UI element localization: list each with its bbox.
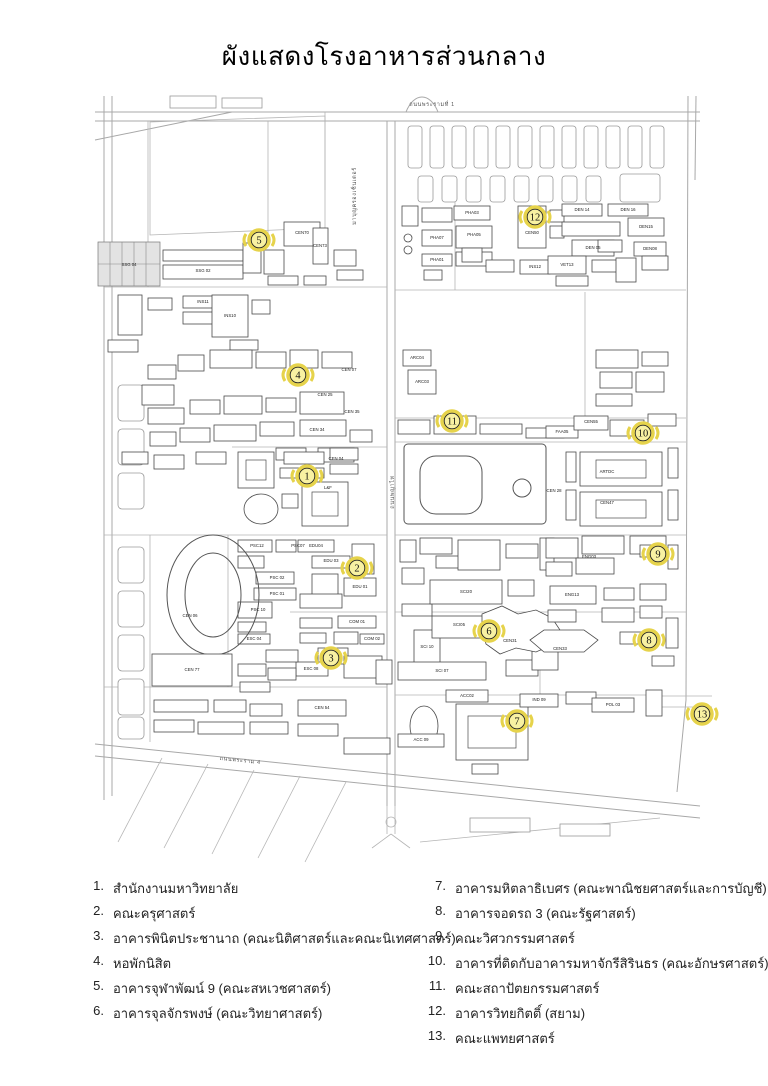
marker-number: 13	[697, 710, 708, 721]
building-label: DEN08	[643, 246, 657, 251]
legend-item-number: 11.	[420, 978, 446, 993]
building-label: INS10	[224, 313, 237, 318]
legend-item: 2.คณะครุศาสตร์	[78, 903, 413, 928]
street-label: ถนนพญาไท	[389, 475, 396, 508]
building-label: DEN 16	[620, 207, 636, 212]
legend-item: 6.อาคารจุลจักรพงษ์ (คณะวิทยาศาสตร์)	[78, 1003, 413, 1028]
utensil-tick-left-icon	[687, 708, 689, 720]
building-label: PHA01	[430, 257, 444, 262]
legend-item: 12.อาคารวิทยกิตติ์ (สยาม)	[420, 1003, 765, 1028]
building-label: VET13	[560, 262, 574, 267]
legend-item-text: คณะครุศาสตร์	[113, 903, 195, 924]
legend-item-number: 7.	[420, 878, 446, 893]
building-label: SCI20	[460, 589, 473, 594]
building-label: CEN 07	[341, 367, 357, 372]
building-label: PHA07	[430, 235, 444, 240]
building-label: ACC02	[460, 693, 474, 698]
building-label: CEN73	[313, 243, 327, 248]
building-label: ENG03	[582, 554, 597, 559]
legend-item-text: สำนักงานมหาวิทยาลัย	[113, 878, 238, 899]
building-label: CEN55	[584, 419, 598, 424]
utensil-tick-left-icon	[283, 369, 285, 381]
building-label: SCI 10	[420, 644, 434, 649]
marker-number: 4	[295, 371, 301, 382]
legend-item-text: อาคารจุฬาพัฒน์ 9 (คณะสหเวชศาสตร์)	[113, 978, 331, 999]
campus-buildings	[98, 204, 678, 774]
utensil-tick-right-icon	[272, 234, 274, 246]
legend-item-number: 1.	[78, 878, 104, 893]
legend-item: 4.หอพักนิสิต	[78, 953, 413, 978]
marker-number: 5	[256, 236, 261, 247]
building-label: CEN 77	[184, 667, 200, 672]
marker-number: 12	[530, 213, 541, 224]
building-label: PSC 02	[270, 575, 285, 580]
building-label: ACC 09	[413, 737, 429, 742]
building-label: PSC07	[291, 543, 305, 548]
legend-item: 10.อาคารที่ติดกับอาคารมหาจักรีสิรินธร (ค…	[420, 953, 765, 978]
marker-number: 11	[447, 417, 457, 428]
building-label: COM 01	[349, 619, 366, 624]
building-label: ARTDC	[600, 469, 615, 474]
building-label: ARC04	[410, 355, 424, 360]
building-label: CEN31	[503, 638, 517, 643]
marker-number: 2	[354, 564, 359, 575]
legend-item-number: 3.	[78, 928, 104, 943]
legend-item: 9.คณะวิศวกรรมศาสตร์	[420, 928, 765, 953]
marker-number: 7	[514, 717, 519, 728]
building-label: CEN 54	[314, 705, 330, 710]
legend-item: 5.อาคารจุฬาพัฒน์ 9 (คณะสหเวชศาสตร์)	[78, 978, 413, 1003]
legend-item: 1.สำนักงานมหาวิทยาลัย	[78, 878, 413, 903]
building-label: DEN 14	[574, 207, 590, 212]
legend-item-number: 13.	[420, 1028, 446, 1043]
legend-item-text: อาคารพินิตประชานาถ (คณะนิติศาสตร์และคณะน…	[113, 928, 456, 949]
street-label: ถนนพระรามที่ 1	[409, 100, 454, 108]
building-label: PHA03	[465, 210, 479, 215]
utensil-tick-right-icon	[530, 715, 532, 727]
building-label: DEN15	[639, 224, 653, 229]
utensil-tick-right-icon	[662, 634, 664, 646]
legend-item: 8.อาคารจอดรถ 3 (คณะรัฐศาสตร์)	[420, 903, 765, 928]
legend-item-number: 5.	[78, 978, 104, 993]
legend-item: 7.อาคารมหิตลาธิเบศร (คณะพาณิชยศาสตร์และก…	[420, 878, 765, 903]
legend-item-text: อาคารมหิตลาธิเบศร (คณะพาณิชยศาสตร์และการ…	[455, 878, 767, 899]
building-label: SCI 07	[435, 668, 449, 673]
building-label: PSC 01	[270, 591, 285, 596]
building-label: CEN 35	[344, 409, 360, 414]
building-label: FAA05	[556, 429, 570, 434]
legend-item-number: 10.	[420, 953, 446, 968]
building-label: INS11	[197, 299, 209, 304]
legend-item: 11.คณะสถาปัตยกรรมศาสตร์	[420, 978, 765, 1003]
building-label: CEN 04	[328, 456, 344, 461]
building-label: L&F	[324, 485, 332, 490]
marker-number: 3	[328, 654, 333, 665]
legend-item-number: 9.	[420, 928, 446, 943]
legend-right-column: 7.อาคารมหิตลาธิเบศร (คณะพาณิชยศาสตร์และก…	[420, 878, 765, 1053]
building-label: CEN 28	[546, 488, 562, 493]
building-label: IND 09	[532, 697, 546, 702]
building-label: CEN 06	[182, 613, 198, 618]
building-label: SSG 04	[121, 262, 137, 267]
building-label: CEN50	[525, 230, 539, 235]
building-label: CEN33	[553, 646, 567, 651]
building-label: ESC 04	[247, 636, 262, 641]
building-label: EDU 01	[352, 584, 368, 589]
legend-item: 13.คณะแพทยศาสตร์	[420, 1028, 765, 1053]
street-label: ถนนพระราม 4	[219, 756, 261, 766]
legend-left-column: 1.สำนักงานมหาวิทยาลัย2.คณะครุศาสตร์3.อาค…	[78, 878, 413, 1028]
building-label: POL 03	[606, 702, 621, 707]
utensil-tick-right-icon	[715, 708, 717, 720]
marker-number: 6	[486, 627, 491, 638]
utensil-tick-right-icon	[311, 369, 313, 381]
building-label: PHA05	[467, 232, 481, 237]
building-label: ARC03	[415, 379, 429, 384]
legend-item-text: คณะวิศวกรรมศาสตร์	[455, 928, 575, 949]
building-label: SSG 02	[195, 268, 211, 273]
legend-item-text: อาคารที่ติดกับอาคารมหาจักรีสิรินธร (คณะอ…	[455, 953, 768, 974]
building-label: DEN 05	[585, 245, 601, 250]
building-label: ENG13	[565, 592, 580, 597]
building-label: EDU 03	[323, 558, 339, 563]
utensil-tick-right-icon	[548, 211, 550, 223]
utensil-tick-left-icon	[244, 234, 246, 246]
legend-item: 3.อาคารพินิตประชานาถ (คณะนิติศาสตร์และคณ…	[78, 928, 413, 953]
marker-number: 1	[304, 472, 309, 483]
building-label: PSC12	[250, 543, 264, 548]
marker-number: 8	[646, 636, 651, 647]
legend-item-number: 2.	[78, 903, 104, 918]
legend-item-text: อาคารจุลจักรพงษ์ (คณะวิทยาศาสตร์)	[113, 1003, 322, 1024]
legend-item-number: 4.	[78, 953, 104, 968]
legend-item-text: อาคารจอดรถ 3 (คณะรัฐศาสตร์)	[455, 903, 636, 924]
building-label: CEN 25	[317, 392, 333, 397]
legend-item-text: คณะแพทยศาสตร์	[455, 1028, 555, 1049]
building-label: EDU04	[309, 543, 323, 548]
utensil-tick-right-icon	[656, 427, 658, 439]
legend-item-number: 12.	[420, 1003, 446, 1018]
building-label: CEN 34	[309, 427, 325, 432]
legend-item-number: 8.	[420, 903, 446, 918]
building-label: COM 02	[364, 636, 381, 641]
legend-item-text: หอพักนิสิต	[113, 953, 171, 974]
building-label: CEN47	[600, 500, 614, 505]
legend-item-number: 6.	[78, 1003, 104, 1018]
legend-item-text: อาคารวิทยกิตติ์ (สยาม)	[455, 1003, 585, 1024]
building-label: CEN70	[295, 230, 309, 235]
building-label: SCI05	[453, 622, 466, 627]
building-label: PSC 10	[251, 607, 266, 612]
building-label: ESC 08	[304, 666, 319, 671]
building-label: INS12	[529, 264, 542, 269]
marker-number: 10	[638, 429, 649, 440]
street-label: มาบุญครองเซ็นเตอร์	[350, 167, 358, 225]
marker-number: 9	[655, 550, 660, 561]
legend-item-text: คณะสถาปัตยกรรมศาสตร์	[455, 978, 599, 999]
